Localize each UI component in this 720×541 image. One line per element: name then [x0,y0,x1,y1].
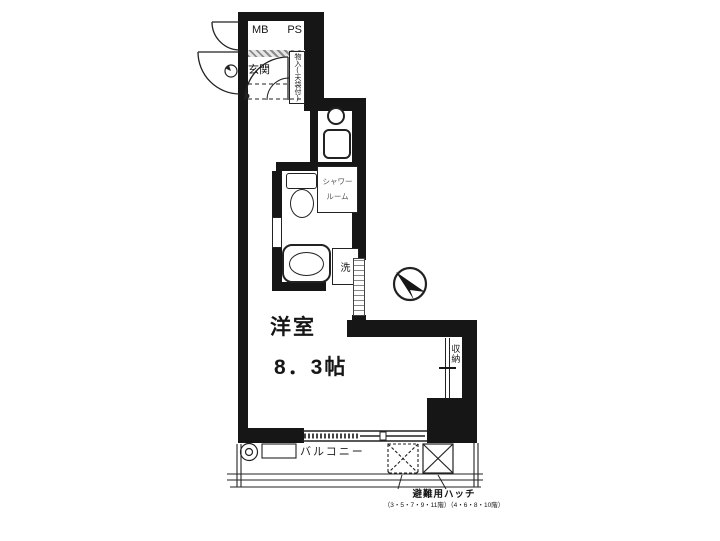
hall-door-swing [245,57,289,100]
floorplan: 物入(天袋付) MB PS 玄関 シャワー ルーム 洗 収納 洋室 8．3帖 バ… [0,0,720,541]
hose-bib-icon [241,444,258,461]
escape-hatch-dashed-icon [388,444,418,473]
balcony-sliding-window [302,431,427,441]
balcony-fixture [262,444,296,458]
door-knob-icon [225,65,237,77]
north-arrow-icon [394,268,426,300]
entrance-door-swing [198,52,240,94]
entrance-step-lines [245,84,303,99]
escape-hatch-solid-icon [423,444,453,473]
exterior-door-swing-small [212,22,240,50]
floorplan-linework [0,0,720,541]
